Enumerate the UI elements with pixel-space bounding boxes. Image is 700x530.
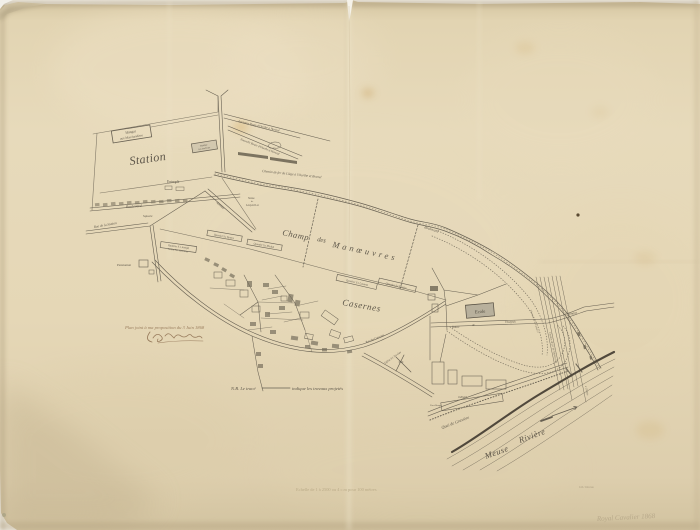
svg-text:Entrepôt: Entrepôt (167, 180, 179, 184)
svg-text:N.B. Le tracé: N.B. Le tracé (230, 386, 256, 391)
svg-text:Echelle de 1 à 2500 ou 4 c.m p: Echelle de 1 à 2500 ou 4 c.m pour 100 mè… (296, 487, 377, 492)
svg-text:Ecole: Ecole (475, 309, 486, 315)
svg-text:Lith. Simonau: Lith. Simonau (579, 486, 595, 489)
svg-text:Léopold I.er: Léopold I.er (246, 204, 259, 207)
svg-text:Square: Square (143, 214, 153, 218)
svg-text:indique les travaux projetés: indique les travaux projetés (292, 386, 343, 391)
svg-text:Plan joint à ma proposition du: Plan joint à ma proposition du 3 Juin 18… (124, 325, 205, 330)
svg-text:Vivegnis: Vivegnis (505, 320, 517, 324)
svg-text:de: de (251, 200, 253, 203)
svg-text:Pont Rouge: Pont Rouge (429, 404, 441, 407)
svg-text:Pensionnat: Pensionnat (117, 263, 131, 267)
